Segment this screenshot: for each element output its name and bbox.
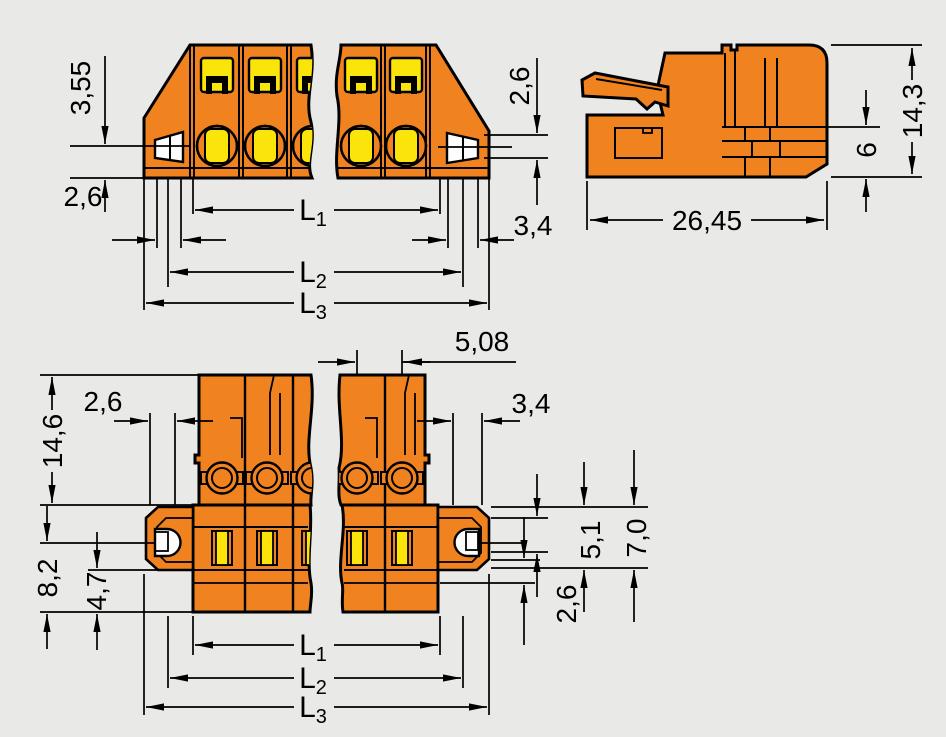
marker-window [347,531,367,565]
technical-drawing-page: 3,55 2,6 3,4 2,6 L1 [0,0,946,737]
dim-bottom-4-7: 4,7 [81,572,112,611]
dim-side-6: 6 [851,142,882,158]
marker-window [212,531,232,565]
dim-side-26-45: 26,45 [672,205,742,236]
dim-side-14-3: 14,3 [897,84,928,139]
dim-bottom-8-2: 8,2 [32,559,63,598]
dim-front-2-6-right: 2,6 [504,67,535,106]
dim-bottom-5-08: 5,08 [455,326,510,357]
dim-bottom-3-4: 3,4 [512,388,551,419]
dim-front-3-4: 3,4 [514,210,553,241]
dim-bottom-5-1: 5,1 [575,521,606,560]
dim-front-2-6-left: 2,6 [64,181,103,212]
dim-front-3-55: 3,55 [65,61,96,116]
connector-dimensional-drawing: 3,55 2,6 3,4 2,6 L1 [0,0,946,737]
dim-bottom-2-6-top: 2,6 [84,386,123,417]
marker-window [257,531,277,565]
dim-bottom-2-6-low: 2,6 [551,585,582,624]
marker-window [392,531,412,565]
dim-bottom-14-6: 14,6 [37,414,68,469]
dim-bottom-7-0: 7,0 [621,519,652,558]
